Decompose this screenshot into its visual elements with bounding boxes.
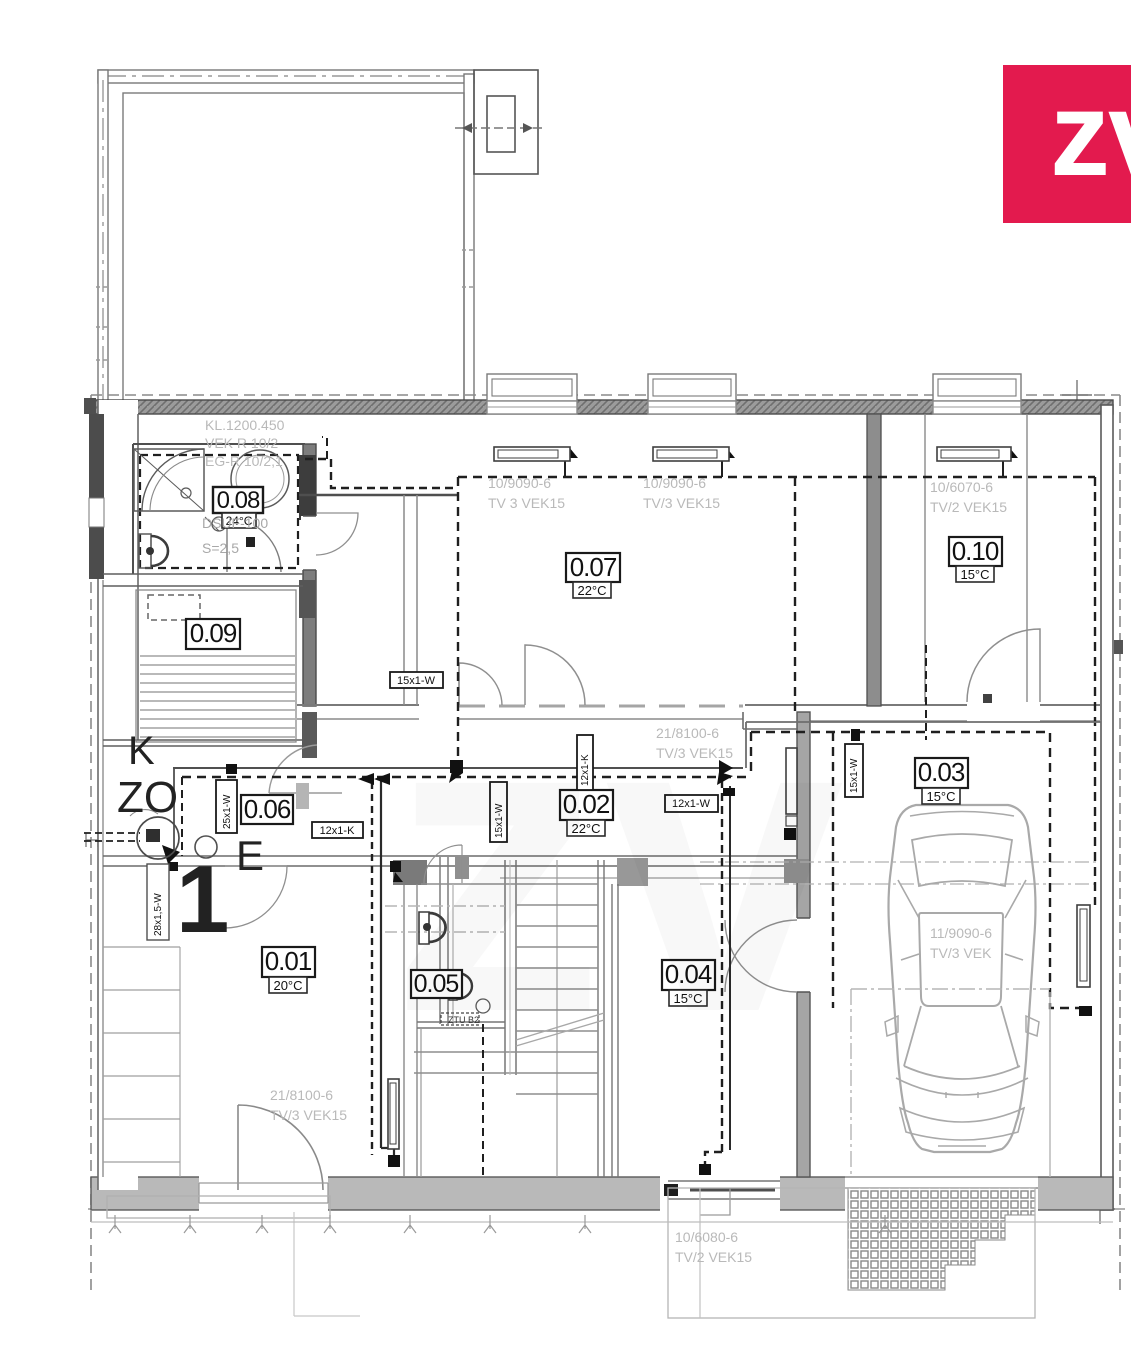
- svg-text:TV/2 VEK15: TV/2 VEK15: [930, 499, 1007, 515]
- svg-text:0.09: 0.09: [190, 618, 237, 648]
- svg-text:21/8100-6: 21/8100-6: [270, 1087, 333, 1103]
- svg-text:15°C: 15°C: [926, 789, 955, 804]
- svg-text:TV 3 VEK15: TV 3 VEK15: [488, 495, 565, 511]
- svg-text:1: 1: [176, 846, 229, 953]
- svg-text:ZO: ZO: [117, 773, 178, 822]
- svg-text:TV/3 VEK: TV/3 VEK: [930, 945, 992, 961]
- svg-text:KL.1200.450: KL.1200.450: [205, 417, 285, 433]
- svg-text:15°C: 15°C: [960, 567, 989, 582]
- svg-text:10/9090-6: 10/9090-6: [488, 475, 551, 491]
- svg-text:EG-R 10/2,1: EG-R 10/2,1: [205, 453, 283, 469]
- svg-text:0.01: 0.01: [265, 946, 312, 976]
- svg-text:11/9090-6: 11/9090-6: [930, 925, 992, 941]
- svg-text:28x1,5-W: 28x1,5-W: [153, 893, 164, 936]
- svg-text:15x1-W: 15x1-W: [849, 758, 860, 793]
- svg-text:10/9090-6: 10/9090-6: [643, 475, 706, 491]
- svg-text:K: K: [128, 729, 155, 773]
- svg-text:12x1-K: 12x1-K: [320, 825, 356, 837]
- svg-text:20°C: 20°C: [273, 978, 302, 993]
- svg-text:10/6070-6: 10/6070-6: [930, 479, 993, 495]
- svg-text:VEK R 10/2: VEK R 10/2: [205, 435, 278, 451]
- svg-text:0.07: 0.07: [570, 552, 617, 582]
- svg-text:DSUF-100: DSUF-100: [202, 515, 268, 531]
- svg-text:TV/2 VEK15: TV/2 VEK15: [675, 1249, 752, 1265]
- svg-text:25x1-W: 25x1-W: [222, 794, 233, 829]
- svg-text:0.03: 0.03: [918, 757, 965, 787]
- svg-text:TV/3 VEK15: TV/3 VEK15: [643, 495, 720, 511]
- svg-text:TV/3 VEK15: TV/3 VEK15: [270, 1107, 347, 1123]
- svg-text:0.10: 0.10: [952, 536, 999, 566]
- svg-text:0.06: 0.06: [244, 794, 291, 824]
- svg-text:0.08: 0.08: [217, 487, 260, 514]
- svg-text:zv: zv: [390, 622, 847, 1102]
- svg-text:S=2,5: S=2,5: [202, 540, 239, 556]
- svg-text:E: E: [236, 832, 264, 879]
- svg-text:22°C: 22°C: [577, 583, 606, 598]
- svg-text:10/6080-6: 10/6080-6: [675, 1229, 738, 1245]
- svg-text:zv: zv: [1050, 67, 1131, 201]
